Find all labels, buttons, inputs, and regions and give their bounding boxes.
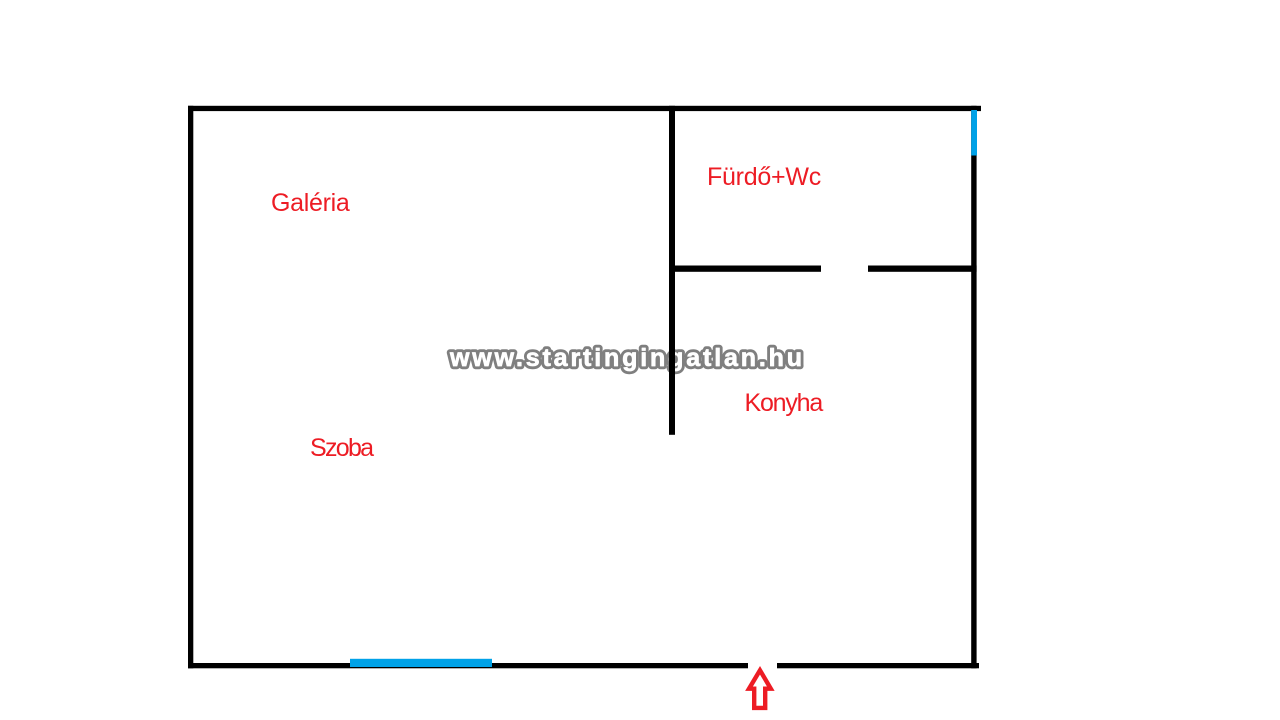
svg-text:Konyha: Konyha [745, 389, 824, 417]
svg-text:Szoba: Szoba [310, 434, 374, 462]
svg-text:Fürdő+Wc: Fürdő+Wc [707, 163, 821, 191]
svg-text:www.startingingatlan.hu: www.startingingatlan.hu [449, 344, 805, 372]
svg-text:Galéria: Galéria [271, 189, 350, 217]
